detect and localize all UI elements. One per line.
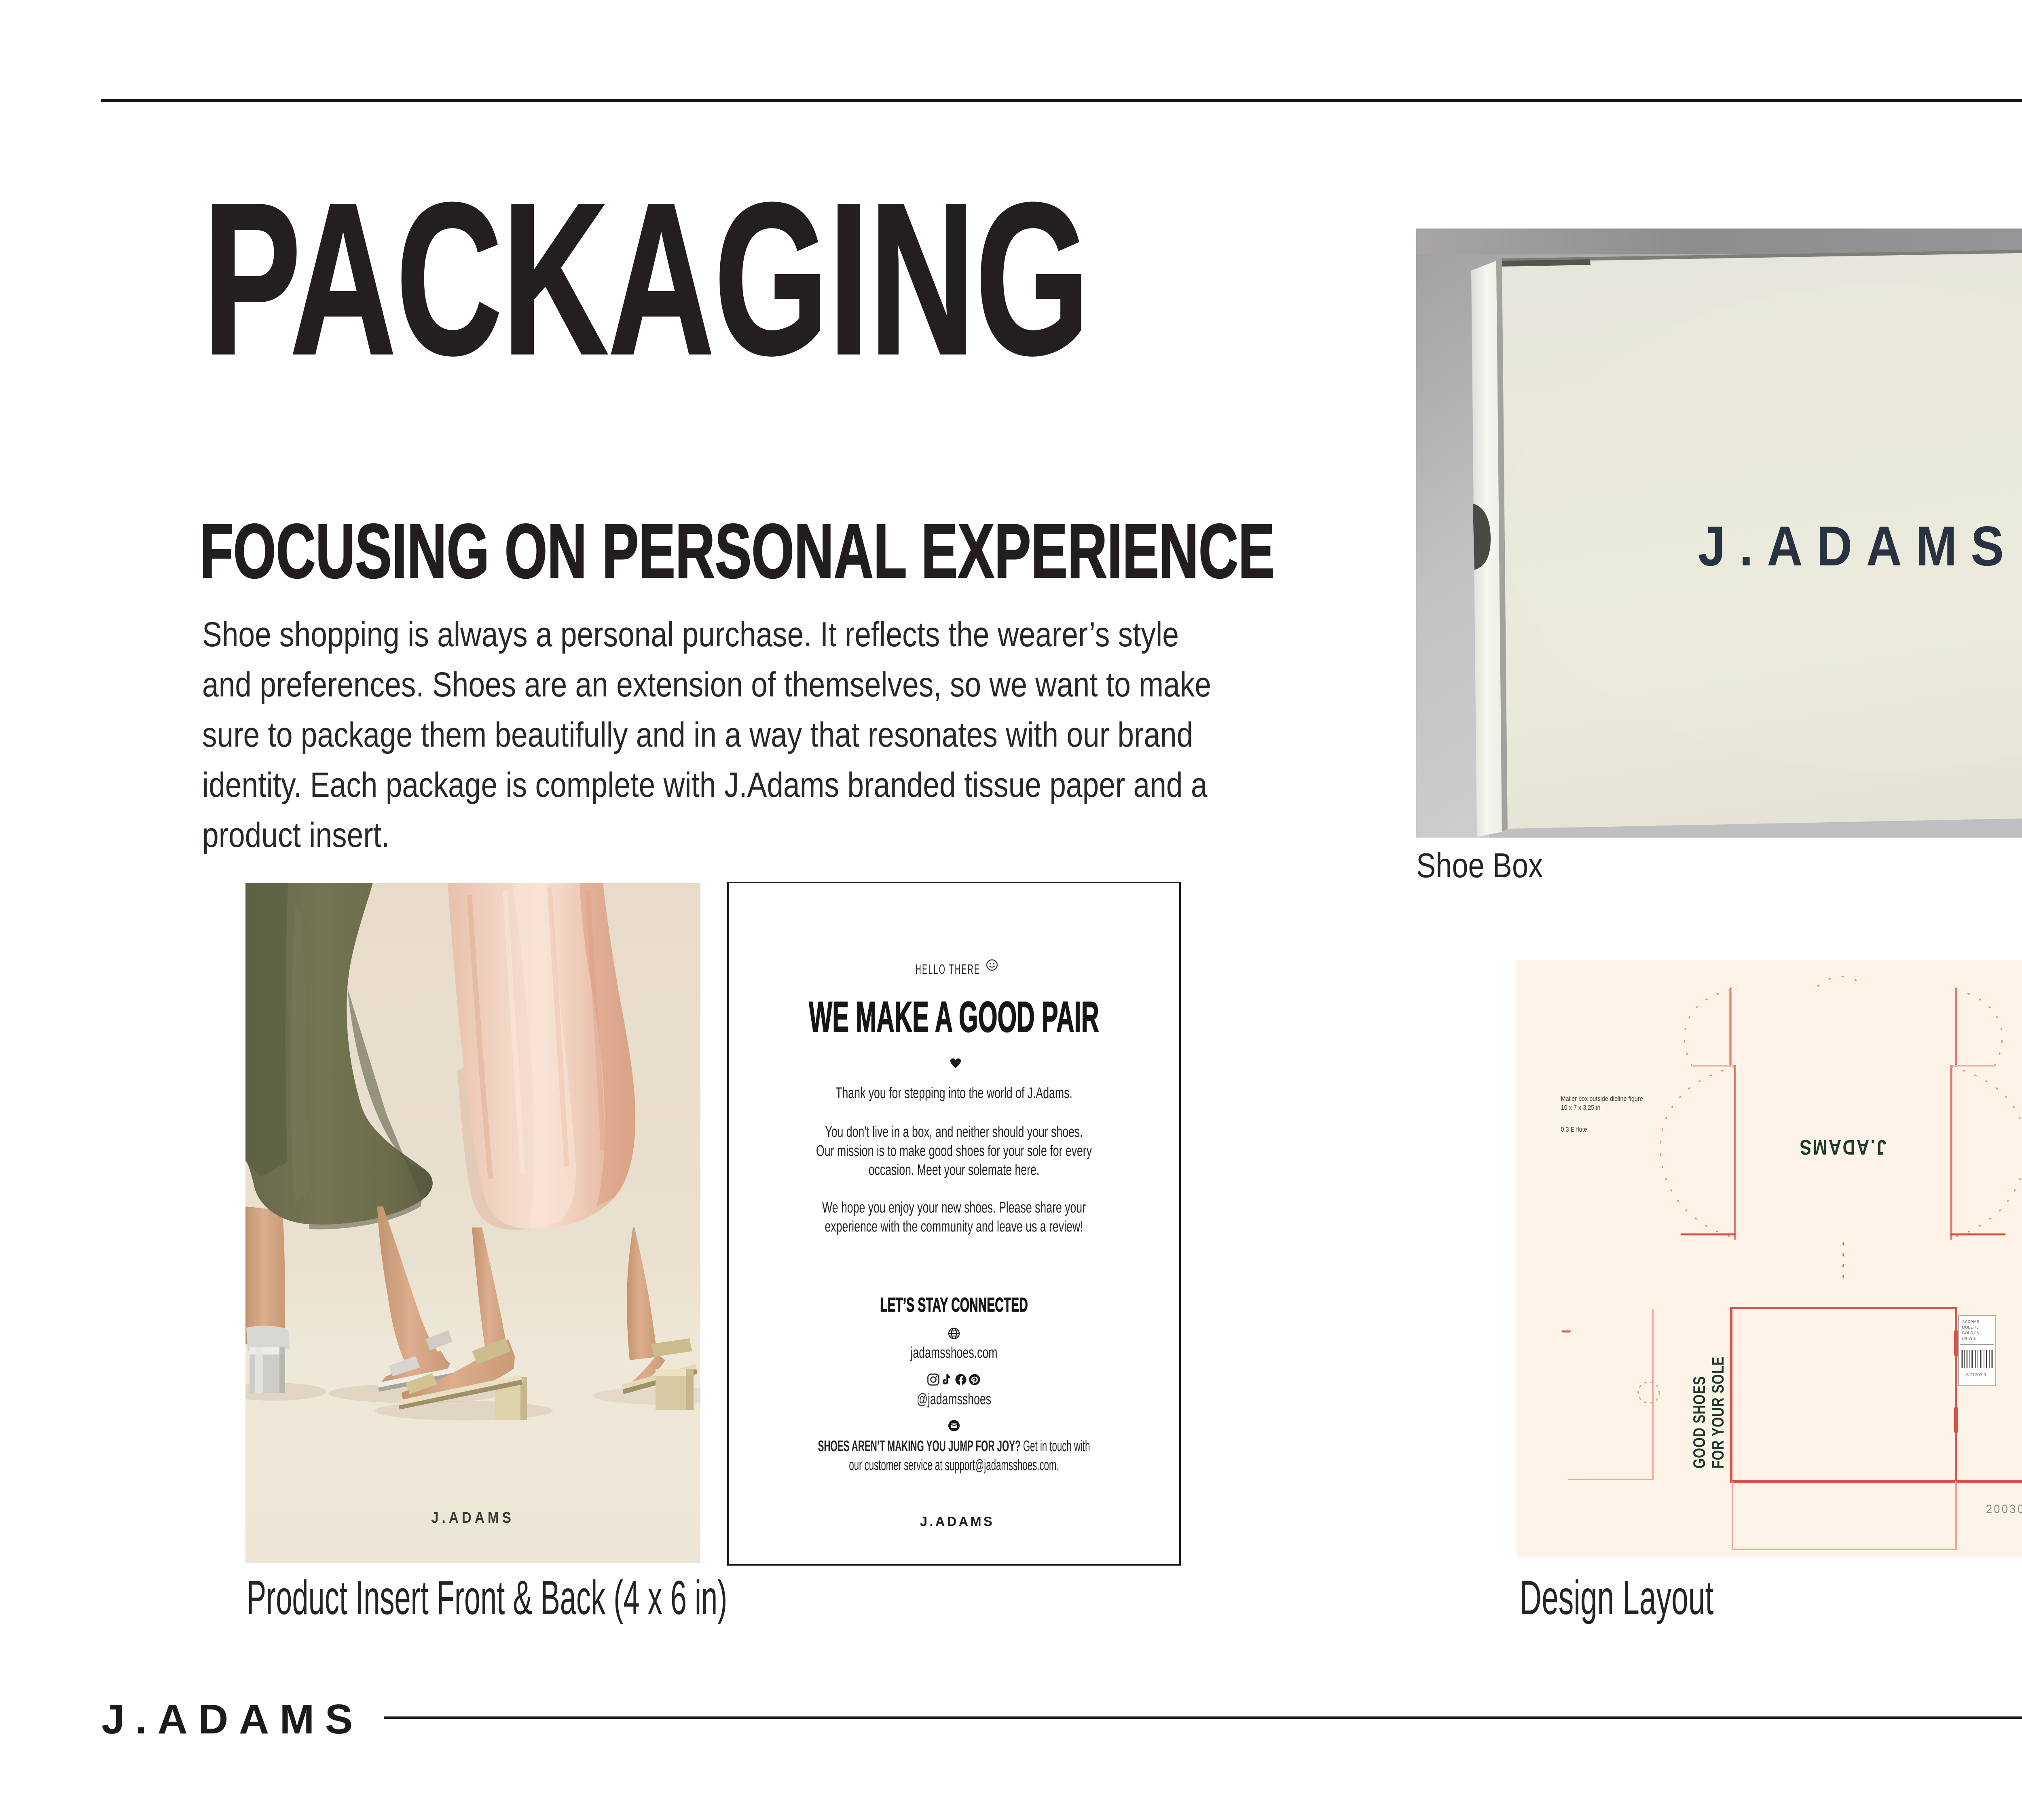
- svg-text:20030720 PLA.01M: 20030720 PLA.01M: [1986, 1503, 2022, 1516]
- svg-text:0.3 E flute: 0.3 E flute: [1561, 1126, 1587, 1133]
- svg-text:MULE 75: MULE 75: [1962, 1325, 1979, 1330]
- svg-text:US W 8: US W 8: [1962, 1337, 1976, 1341]
- svg-text:GOOD SHOES: GOOD SHOES: [1690, 1376, 1709, 1469]
- svg-text:FOR YOUR SOLE: FOR YOUR SOLE: [1708, 1357, 1727, 1469]
- svg-text:10 x 7 x 3.25 in: 10 x 7 x 3.25 in: [1561, 1104, 1601, 1111]
- svg-text:J.ADAMS: J.ADAMS: [431, 1509, 514, 1526]
- svg-text:J.ADAMS: J.ADAMS: [1962, 1320, 1980, 1324]
- svg-text:GOLD / 8: GOLD / 8: [1962, 1331, 1979, 1335]
- svg-text:J.ADAMS: J.ADAMS: [1698, 514, 2018, 578]
- svg-text:Mailer box outside dieline fig: Mailer box outside dieline figure: [1561, 1095, 1643, 1103]
- svg-text:J.ADAMS: J.ADAMS: [1798, 1135, 1886, 1159]
- svg-text:8 71203 9: 8 71203 9: [1966, 1373, 1986, 1378]
